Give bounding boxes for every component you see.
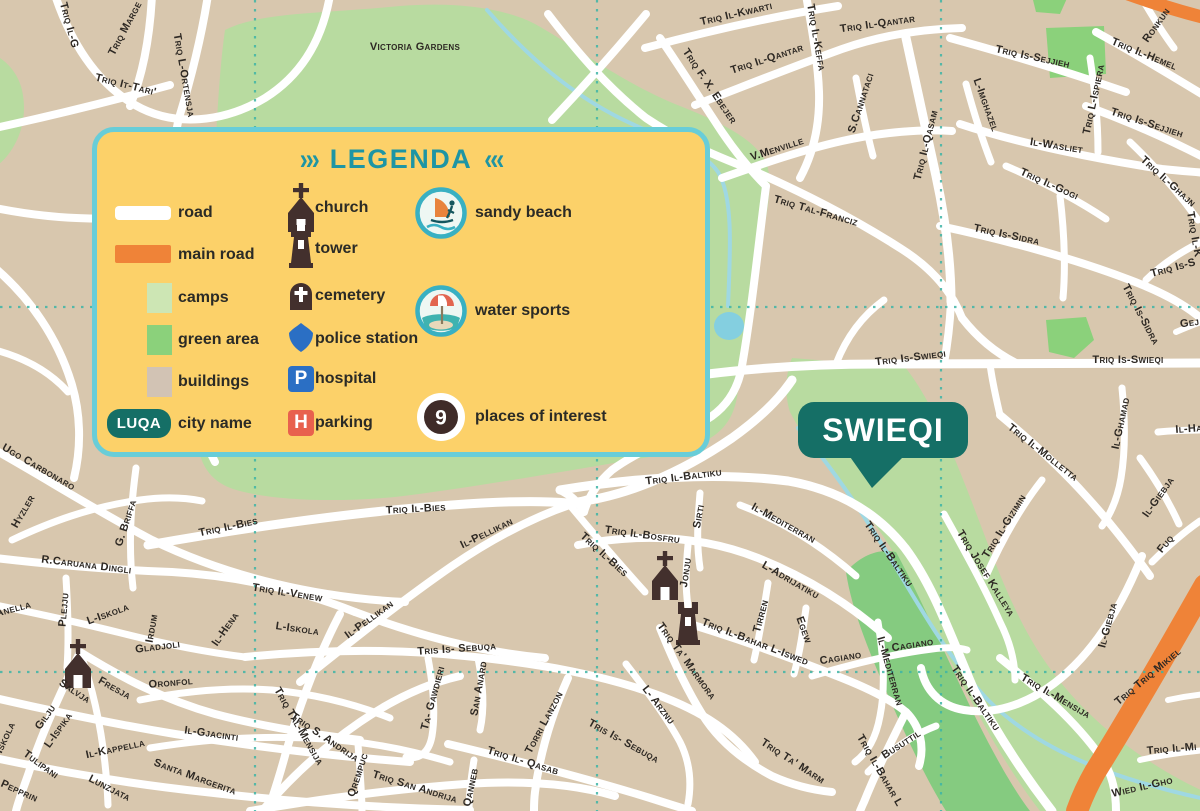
pond [714,312,744,340]
legend-label-road: road [178,203,213,223]
cemetery-icon [283,280,319,314]
road-swatch [115,206,171,220]
city-badge-label: SWIEQI [822,412,944,448]
legend-label-church: church [315,198,368,218]
legend-label-green-area: green area [178,330,259,350]
street-label: Victoria Gardens [370,41,461,53]
chevrons-left-icon: ‹‹‹ [484,142,502,177]
camps-swatch [147,283,172,313]
legend-label-cemetery: cemetery [315,286,385,306]
legend-label-tower: tower [315,239,358,259]
legend-label-water-sports: water sports [475,301,570,321]
main-road-swatch [115,245,171,263]
legend-label-sandy-beach: sandy beach [475,203,572,223]
police-station-icon [284,322,318,356]
green-area-swatch [147,325,172,355]
water-sports-icon [414,284,468,338]
street-label: Triq Is-Swieqi [1092,354,1163,366]
legend-title: LEGENDA [330,144,473,175]
legend-title-row: ››› LEGENDA ‹‹‹ [97,144,705,175]
city-name-sample-badge: LUQA [107,409,171,438]
legend-label-places-of-interest: places of interest [475,407,607,427]
legend-label-camps: camps [178,288,229,308]
poi-number: 9 [435,407,447,430]
legend-label-buildings: buildings [178,372,249,392]
legend-panel: ››› LEGENDA ‹‹‹ LUQA road main road camp… [92,127,710,457]
legend-label-main-road: main road [178,245,254,265]
legend-label-city-name: city name [178,414,252,434]
places-of-interest-icon: 9 [414,390,468,444]
hospital-icon: P [288,366,314,392]
map-stage: Triq MargeTriq It-Tari'Triq L-OrtensjaTr… [0,0,1200,811]
legend-label-hospital: hospital [315,369,376,389]
chevrons-right-icon: ››› [300,142,318,177]
buildings-swatch [147,367,172,397]
street-label: Il-Ha [1175,422,1200,436]
legend-label-parking: parking [315,413,373,433]
sandy-beach-icon [414,186,468,240]
legend-label-police-station: police station [315,329,418,349]
parking-icon: H [288,410,314,436]
